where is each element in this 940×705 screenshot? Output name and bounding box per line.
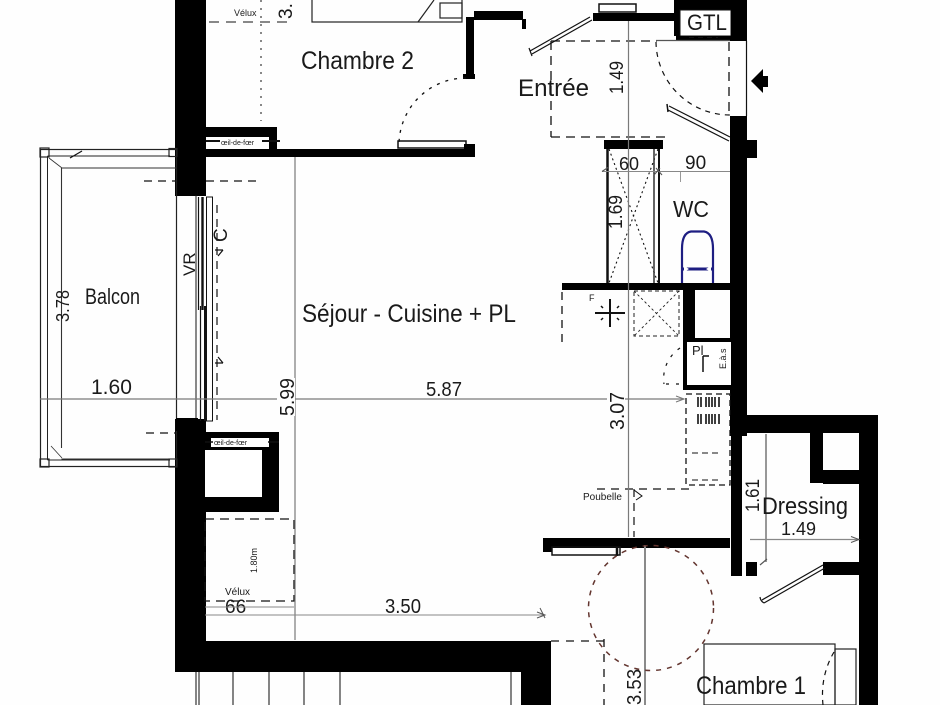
svg-text:3.50: 3.50 — [385, 596, 421, 618]
svg-text:F: F — [589, 293, 595, 303]
svg-text:1.49: 1.49 — [781, 519, 816, 539]
svg-text:œil-de-fœr: œil-de-fœr — [214, 440, 248, 447]
svg-text:Balcon: Balcon — [85, 284, 140, 309]
svg-text:3.07: 3.07 — [607, 392, 629, 430]
svg-text:Dressing: Dressing — [762, 493, 848, 520]
svg-text:Chambre 1: Chambre 1 — [696, 672, 806, 700]
svg-text:3.53: 3.53 — [624, 669, 646, 705]
svg-text:Entrée: Entrée — [518, 75, 589, 102]
svg-text:1.69: 1.69 — [606, 195, 627, 229]
svg-text:1.49: 1.49 — [607, 61, 628, 94]
svg-text:1.60: 1.60 — [91, 376, 132, 399]
svg-text:1.61: 1.61 — [743, 479, 764, 512]
svg-text:Vélux: Vélux — [234, 8, 257, 18]
svg-text:GTL: GTL — [687, 10, 727, 35]
svg-text:Poubelle: Poubelle — [583, 492, 622, 503]
svg-text:VR: VR — [180, 252, 199, 276]
svg-text:90: 90 — [685, 153, 706, 174]
svg-text:Séjour - Cuisine + PL: Séjour - Cuisine + PL — [302, 300, 516, 328]
svg-text:E.à.s: E.à.s — [718, 348, 728, 369]
svg-text:5.87: 5.87 — [426, 379, 462, 401]
svg-text:1.80m: 1.80m — [249, 548, 259, 573]
svg-text:C: C — [211, 228, 232, 242]
svg-text:œil-de-fœr: œil-de-fœr — [221, 140, 255, 147]
svg-text:3.: 3. — [276, 3, 297, 19]
svg-text:60: 60 — [619, 154, 639, 174]
svg-text:Pl: Pl — [692, 343, 704, 358]
svg-text:3.78: 3.78 — [53, 290, 73, 322]
svg-text:Chambre 2: Chambre 2 — [301, 47, 414, 75]
svg-text:WC: WC — [673, 196, 709, 222]
svg-text:5.99: 5.99 — [277, 378, 299, 416]
